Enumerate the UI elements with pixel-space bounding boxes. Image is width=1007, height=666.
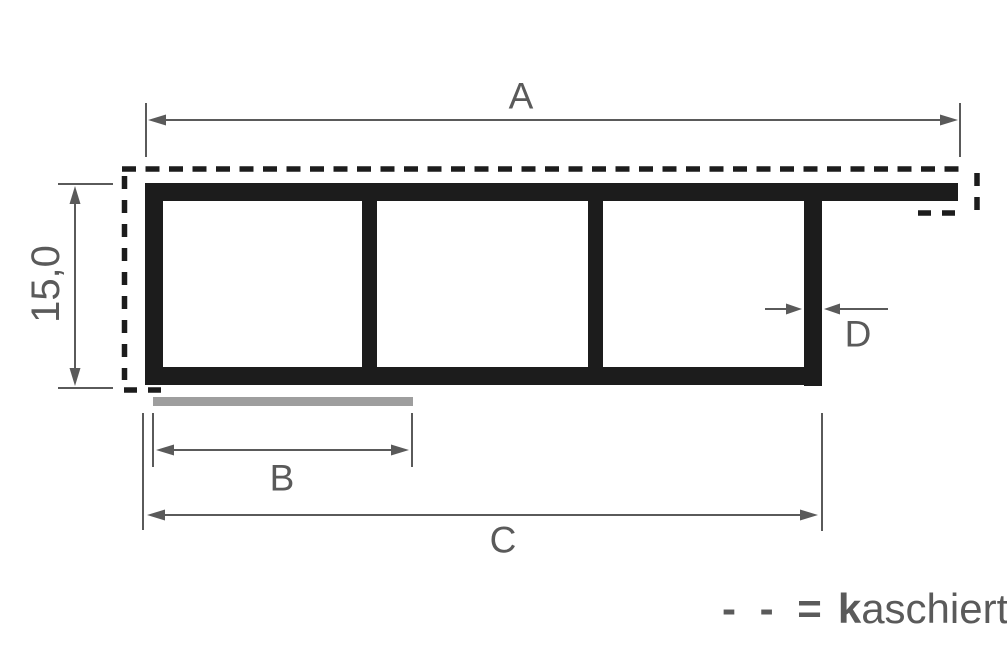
arrow-right-icon <box>391 445 409 456</box>
legend-term-bold-prefix: k <box>838 585 861 632</box>
legend-term-rest: aschiert <box>861 585 1007 632</box>
dimension-b-label: B <box>270 460 295 497</box>
dimension-c <box>143 413 822 531</box>
dimension-a-label: A <box>509 78 534 115</box>
profile-bottom-wall <box>145 367 822 385</box>
legend-dash-symbol: - - = <box>722 585 828 632</box>
dimension-height-label: 15,0 <box>26 245 66 323</box>
profile-inner-wall-2 <box>588 199 603 369</box>
dimension-a <box>146 103 960 157</box>
profile-inner-wall-1 <box>362 199 377 369</box>
arrow-left-icon <box>156 445 174 456</box>
dimension-d-label: D <box>845 316 872 353</box>
arrow-right-icon <box>786 304 802 315</box>
lamination-dashed-outline <box>122 169 977 390</box>
arrow-left-icon <box>147 510 165 521</box>
technical-drawing-profile-cross-section: A 15,0 B C D - - =kaschiert <box>0 0 1007 666</box>
arrow-down-icon <box>70 368 81 386</box>
arrow-left-icon <box>148 115 166 126</box>
profile-cross-section <box>145 183 958 386</box>
legend-kaschiert: - - =kaschiert <box>722 588 1007 630</box>
arrow-up-icon <box>70 186 81 204</box>
arrow-left-icon <box>824 304 840 315</box>
profile-right-wall <box>804 199 822 386</box>
profile-left-wall <box>145 183 163 385</box>
dimension-c-label: C <box>490 522 517 559</box>
arrow-right-icon <box>800 510 818 521</box>
arrow-right-icon <box>940 115 958 126</box>
profile-top-flange <box>145 183 958 201</box>
laminate-strip-bar <box>153 397 413 406</box>
